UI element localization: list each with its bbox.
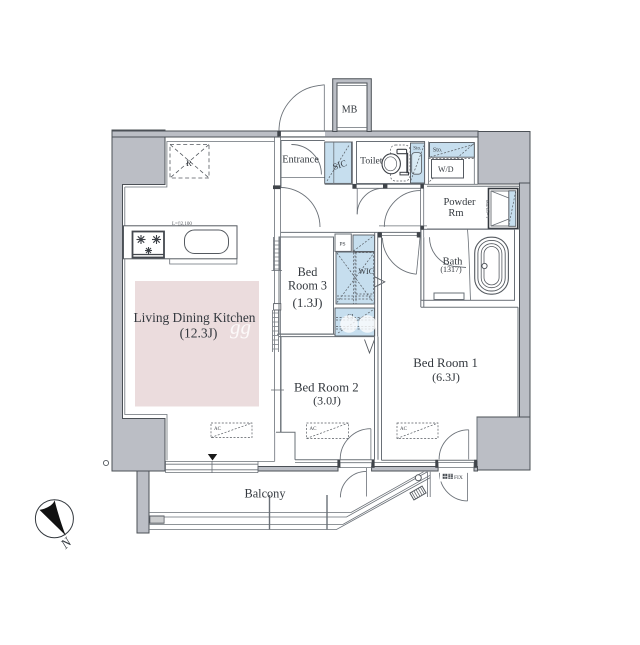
svg-text:Bed Room 2: Bed Room 2 <box>294 381 359 395</box>
svg-text:AC: AC <box>310 427 318 432</box>
svg-text:(1317): (1317) <box>440 265 462 274</box>
svg-text:(3.0J): (3.0J) <box>313 394 341 408</box>
svg-text:Toilet: Toilet <box>360 155 383 166</box>
svg-text:R: R <box>186 158 192 168</box>
svg-text:W/D: W/D <box>438 165 454 174</box>
svg-text:Bed Room 1: Bed Room 1 <box>413 356 478 370</box>
svg-text:WIC: WIC <box>359 267 375 276</box>
svg-text:(1.3J): (1.3J) <box>293 295 323 310</box>
svg-text:Powder: Powder <box>443 197 476 208</box>
svg-text:(12.3J): (12.3J) <box>180 326 218 341</box>
svg-text:Sto.: Sto. <box>433 148 443 154</box>
svg-text:Room 3: Room 3 <box>288 279 327 293</box>
svg-text:AC: AC <box>400 427 408 432</box>
svg-text:AC: AC <box>214 427 222 432</box>
svg-text:Bed: Bed <box>298 265 318 279</box>
svg-text:gg: gg <box>230 315 251 339</box>
svg-text:Rm: Rm <box>448 208 463 219</box>
svg-text:PS: PS <box>340 242 346 248</box>
svg-text:(6.3J): (6.3J) <box>432 370 460 384</box>
svg-text:L=▯2,100: L=▯2,100 <box>172 221 192 227</box>
svg-text:MB: MB <box>342 105 358 116</box>
svg-text:FIX: FIX <box>454 475 463 481</box>
svg-text:Entrance: Entrance <box>282 155 319 166</box>
svg-text:Sto.: Sto. <box>413 146 421 151</box>
svg-text:Balcony: Balcony <box>245 487 287 501</box>
